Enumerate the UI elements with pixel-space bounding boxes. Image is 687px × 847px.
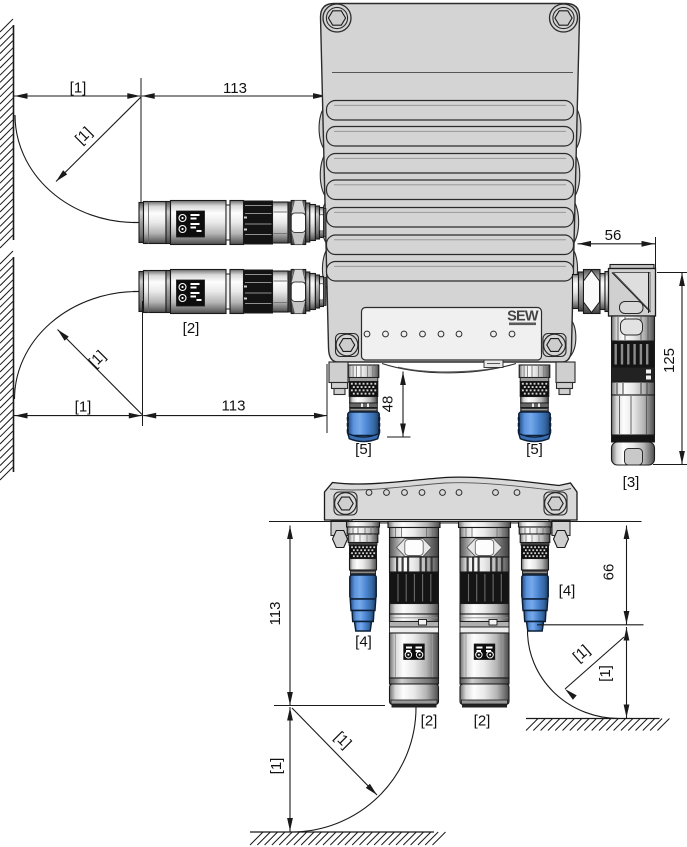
svg-text:125: 125 bbox=[661, 348, 678, 373]
svg-text:[2]: [2] bbox=[183, 320, 200, 337]
svg-text:113: 113 bbox=[267, 602, 284, 626]
svg-text:[2]: [2] bbox=[474, 713, 491, 730]
svg-text:[5]: [5] bbox=[355, 441, 372, 458]
svg-text:[5]: [5] bbox=[526, 441, 543, 458]
svg-text:[4]: [4] bbox=[559, 583, 576, 600]
svg-text:48: 48 bbox=[380, 396, 397, 413]
svg-text:[2]: [2] bbox=[421, 713, 438, 730]
svg-text:[1]: [1] bbox=[597, 665, 614, 682]
svg-text:113: 113 bbox=[223, 80, 247, 97]
svg-text:113: 113 bbox=[222, 398, 246, 415]
svg-text:SEW: SEW bbox=[507, 309, 539, 325]
svg-text:56: 56 bbox=[605, 227, 622, 244]
svg-text:66: 66 bbox=[601, 564, 618, 581]
svg-text:[3]: [3] bbox=[623, 474, 640, 491]
svg-text:[4]: [4] bbox=[355, 634, 372, 651]
svg-text:[1]: [1] bbox=[75, 399, 92, 416]
svg-text:[1]: [1] bbox=[268, 758, 285, 775]
svg-text:[1]: [1] bbox=[70, 80, 87, 97]
